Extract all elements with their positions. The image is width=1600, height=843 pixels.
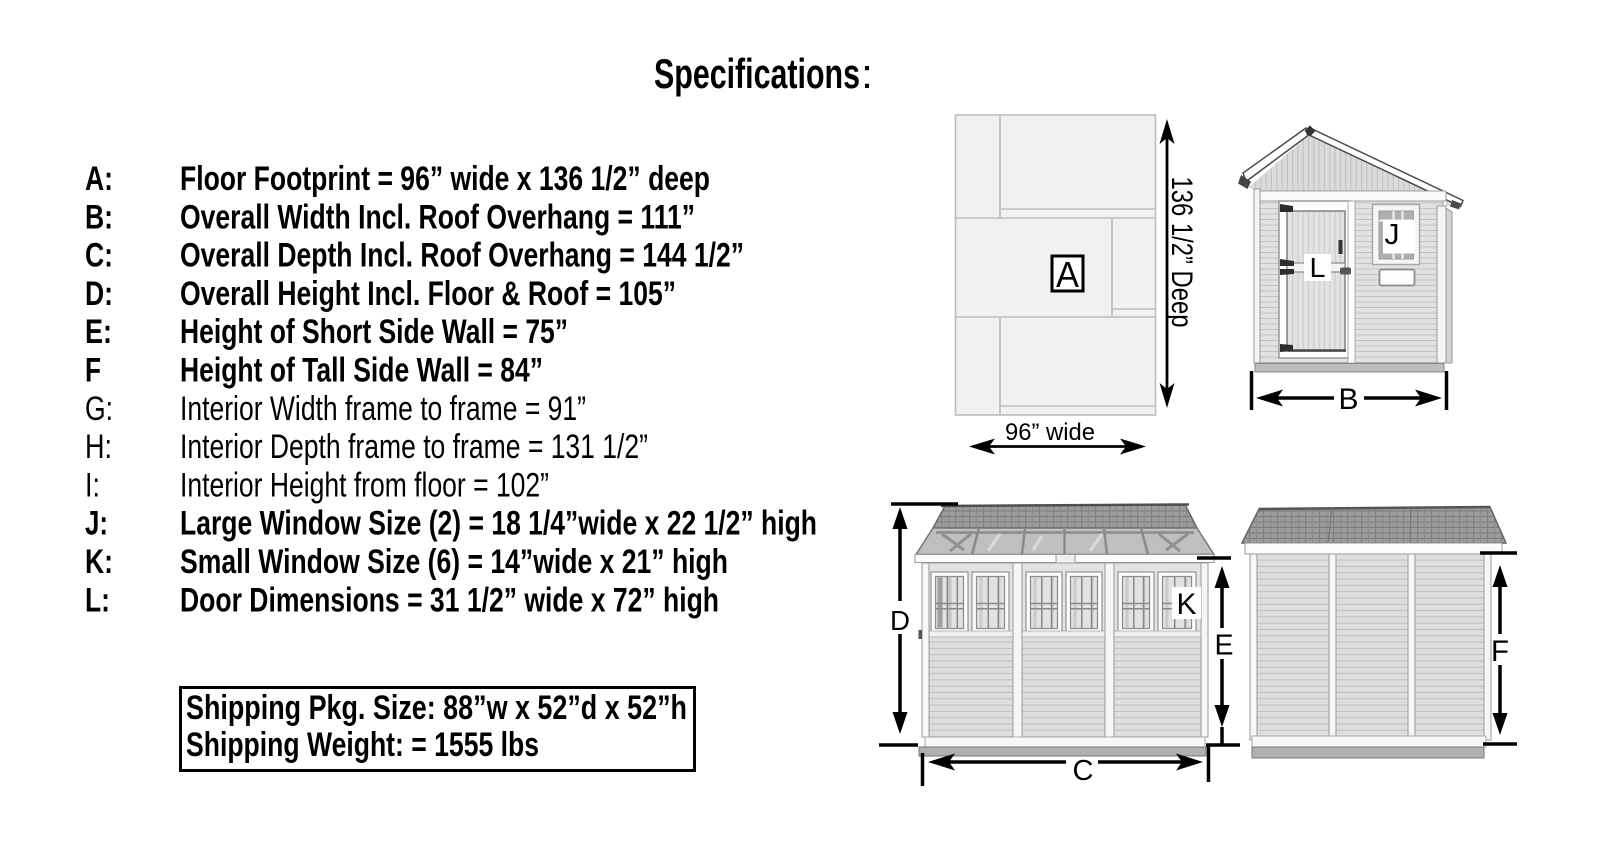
svg-text:F: F bbox=[1491, 635, 1509, 668]
svg-text:J: J bbox=[1385, 219, 1400, 251]
svg-text:L: L bbox=[1310, 252, 1326, 283]
svg-text:C: C bbox=[1073, 755, 1094, 787]
svg-text:D: D bbox=[890, 605, 910, 636]
svg-text:K: K bbox=[1177, 588, 1197, 621]
svg-text:E: E bbox=[1215, 630, 1234, 662]
svg-text:B: B bbox=[1339, 383, 1359, 416]
